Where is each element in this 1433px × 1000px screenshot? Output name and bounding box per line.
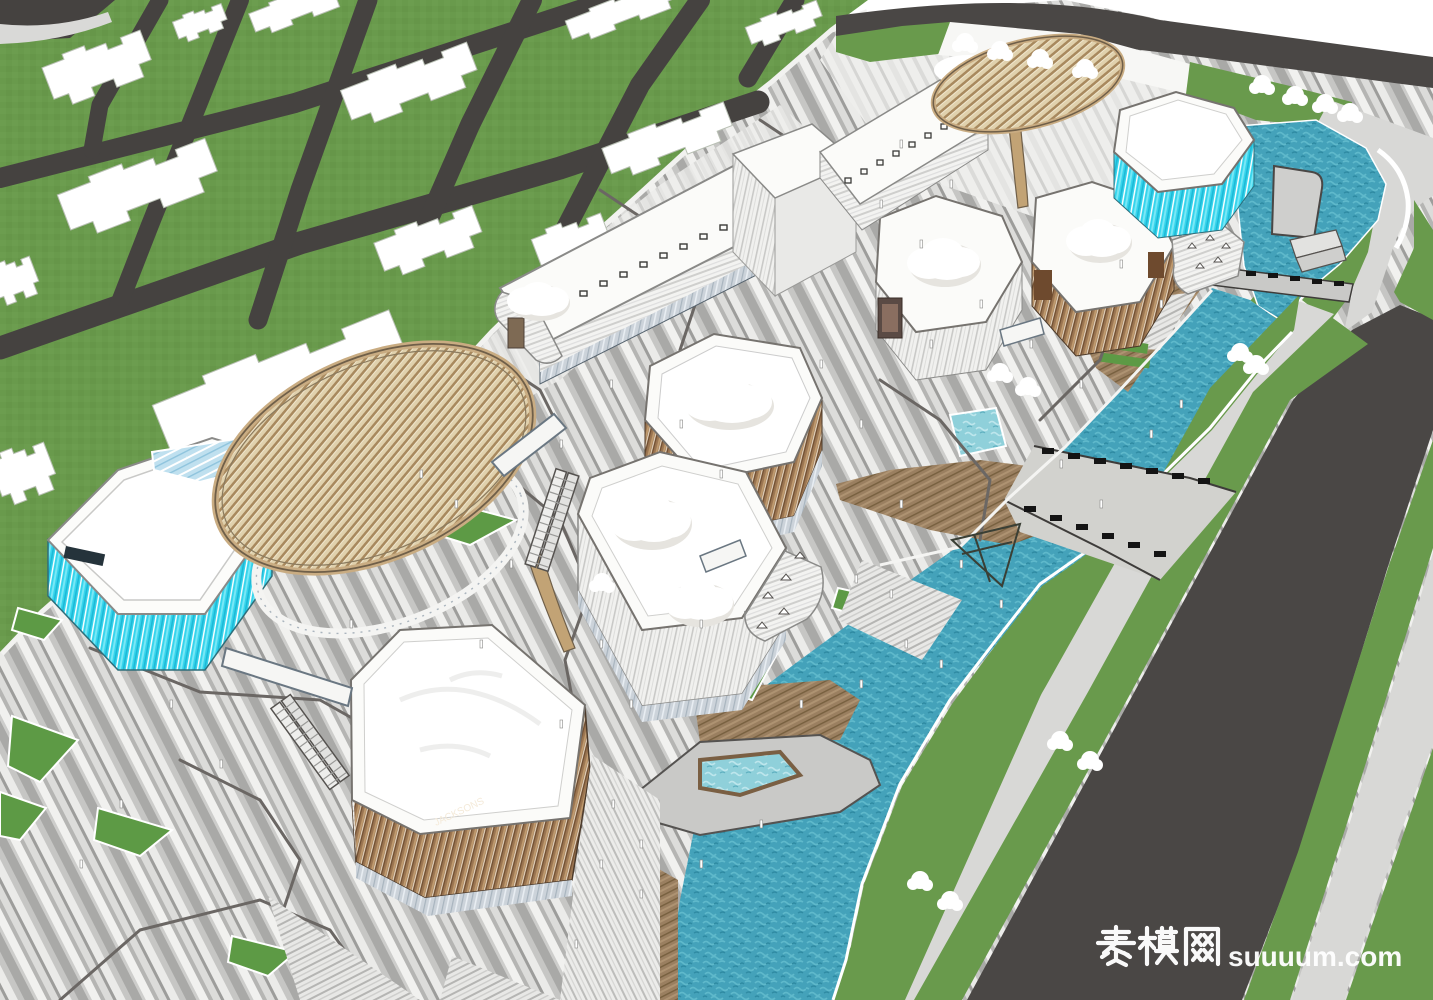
- svg-text:suuuum.com: suuuum.com: [1228, 941, 1402, 972]
